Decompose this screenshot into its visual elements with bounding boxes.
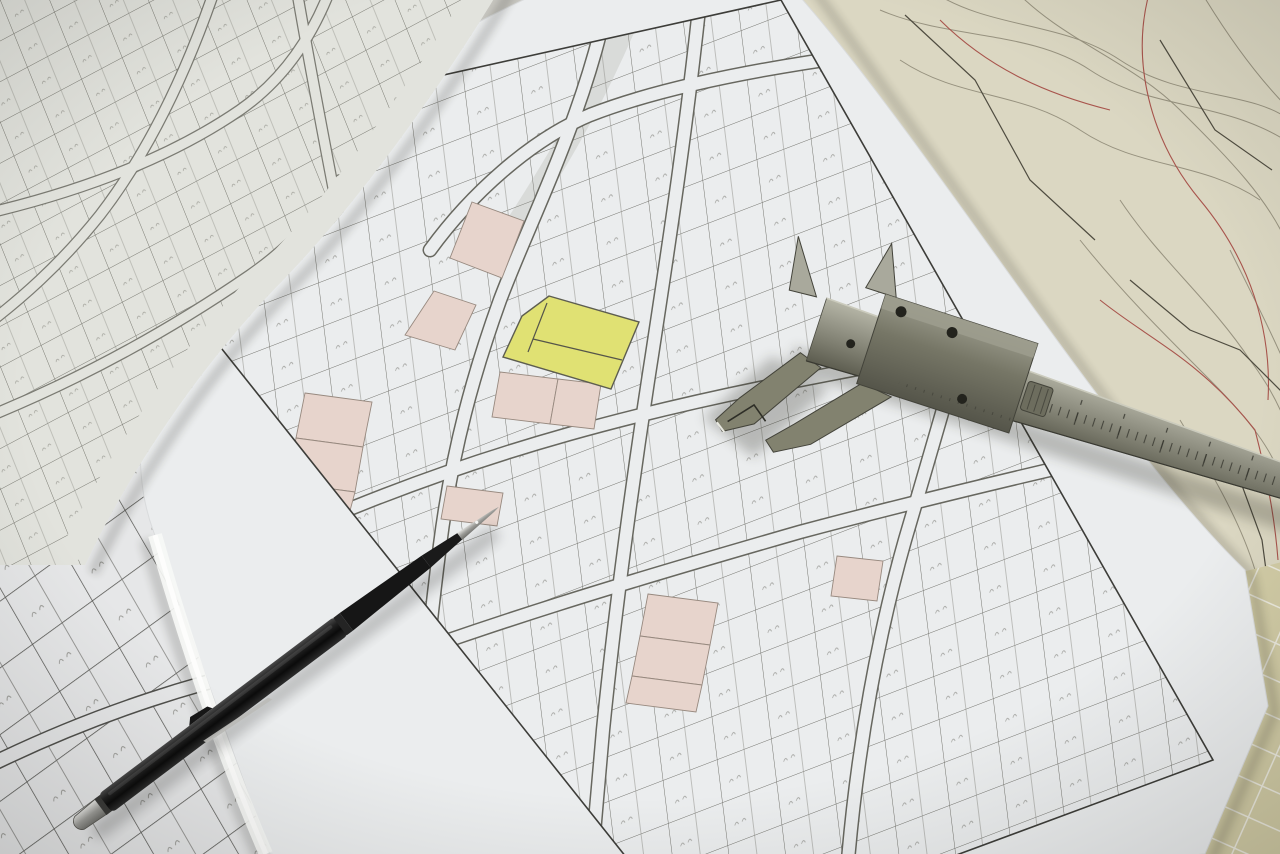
vignette <box>0 0 1280 854</box>
photo-cadastral-maps: Photograph of overlapping cadastral parc… <box>0 0 1280 854</box>
